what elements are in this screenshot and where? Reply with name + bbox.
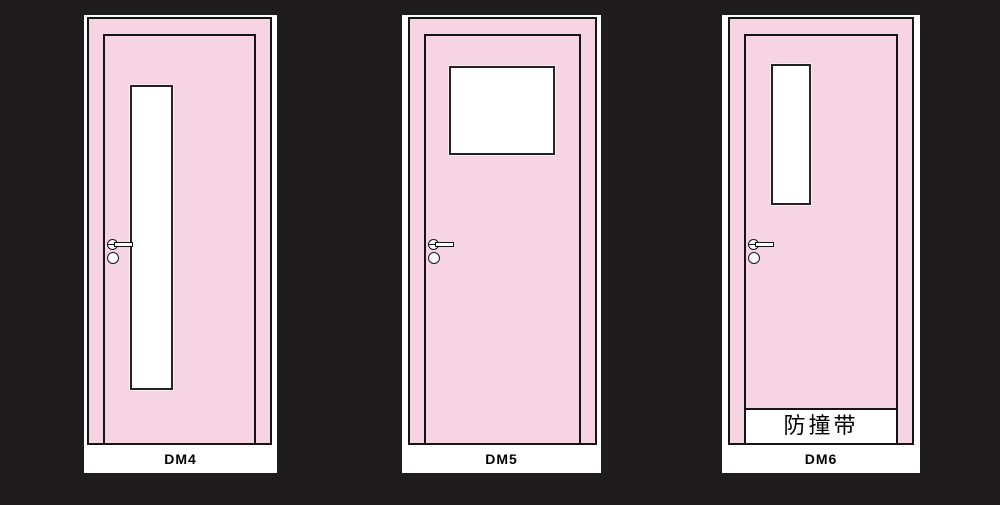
glass-panel xyxy=(130,85,173,390)
glass-panel xyxy=(449,66,555,155)
door-card-dm6: 防撞带 DM6 xyxy=(722,15,920,473)
anti-collision-band: 防撞带 xyxy=(746,408,896,443)
door-label-text: DM5 xyxy=(485,452,518,466)
anti-collision-band-text: 防撞带 xyxy=(783,416,858,438)
door-label: DM6 xyxy=(722,445,920,473)
handle-bar-icon xyxy=(114,242,133,247)
handle-knob-icon xyxy=(748,252,760,264)
door-frame xyxy=(87,17,272,445)
handle-bar-icon xyxy=(755,242,774,247)
door-handle xyxy=(105,239,137,267)
door-label-text: DM4 xyxy=(164,452,197,466)
door-diagram-canvas: DM4 DM5 xyxy=(0,0,1000,505)
door-frame: 防撞带 xyxy=(728,17,914,445)
door-leaf xyxy=(424,34,581,443)
door-card-dm5: DM5 xyxy=(402,15,601,473)
door-handle xyxy=(746,239,778,267)
glass-panel xyxy=(771,64,811,205)
handle-knob-icon xyxy=(107,252,119,264)
door-leaf: 防撞带 xyxy=(744,34,898,443)
door-label: DM4 xyxy=(84,445,277,473)
handle-bar-icon xyxy=(435,242,454,247)
door-label-text: DM6 xyxy=(805,452,838,466)
door-handle xyxy=(426,239,458,267)
door-label: DM5 xyxy=(402,445,601,473)
door-frame xyxy=(408,17,597,445)
handle-knob-icon xyxy=(428,252,440,264)
door-card-dm4: DM4 xyxy=(84,15,277,473)
door-leaf xyxy=(103,34,256,443)
